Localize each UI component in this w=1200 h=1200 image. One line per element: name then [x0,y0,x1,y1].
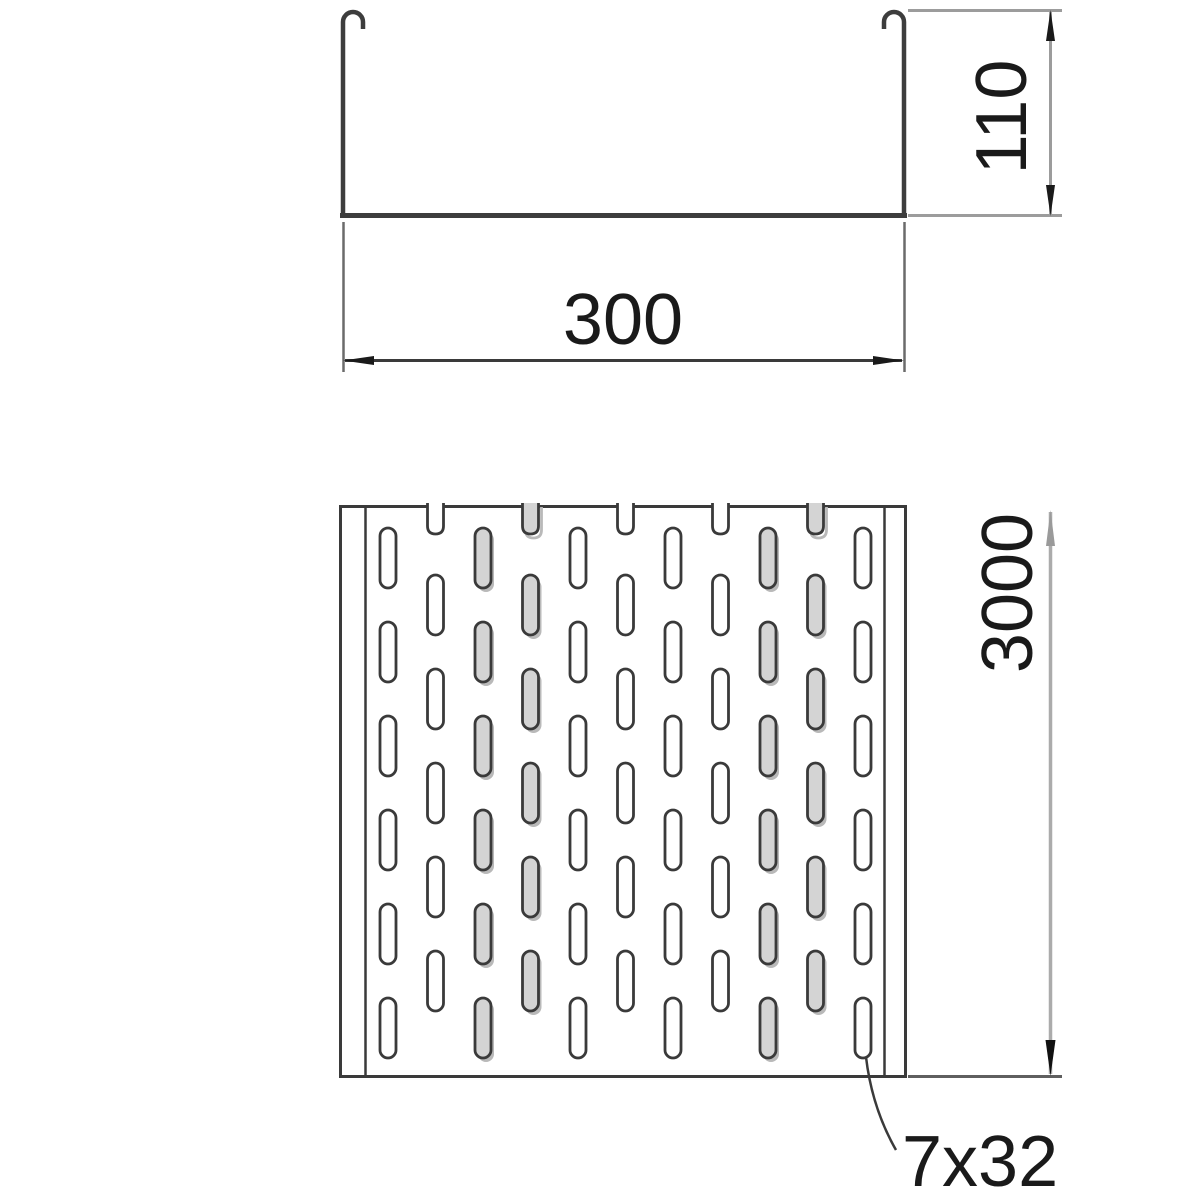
perforation-slot [855,622,871,682]
perforation-slot [808,951,824,1011]
perforation-slot [760,810,776,870]
height-arrow-down-icon [1046,185,1055,216]
perforation-slot [570,528,586,588]
perforation-slot [380,622,396,682]
perforation-slot [523,575,539,635]
perforation-slot [713,951,729,1011]
perforation-slot [713,857,729,917]
perforation-slot [855,998,871,1058]
cross-section-view [340,12,907,218]
perforation-slot [665,528,681,588]
height-arrow-up-icon [1046,10,1055,41]
length-dimension-label: 3000 [968,513,1048,673]
perforation-slot [618,575,634,635]
perforation-slot [760,716,776,776]
perforation-slot [428,857,444,917]
perforation-slot [570,904,586,964]
perforation-slot [475,998,491,1058]
perforation-slot [760,528,776,588]
perforation-slot [475,622,491,682]
width-arrow-left-icon [343,356,374,365]
perforation-slot [570,810,586,870]
perforation-slot [380,998,396,1058]
height-dimension-label: 110 [962,60,1042,175]
length-arrow-down-icon [1046,1040,1056,1076]
perforation-slot [618,951,634,1011]
perforation-slot [665,622,681,682]
perforation-slot [665,716,681,776]
slot-size-callout: 7x32 [866,1057,1058,1200]
slot-notch [808,503,824,534]
perforation-slot [855,528,871,588]
length-dimension: 3000 [908,510,1062,1077]
perforation-slot [475,810,491,870]
width-dimension: 300 [343,222,905,372]
perforation-slot [618,669,634,729]
perforation-slot [475,904,491,964]
perforation-slot [570,998,586,1058]
slot-notch [713,503,729,534]
perforation-slot [808,575,824,635]
perforation-slot [665,998,681,1058]
slot-notch [523,503,539,534]
width-arrow-right-icon [873,356,904,365]
perforation-slot [523,669,539,729]
perforation-slot [665,904,681,964]
perforation-slot [475,716,491,776]
perforation-slot [808,857,824,917]
technical-drawing: 110 300 3000 7x32 [0,0,1200,1200]
perforation-slot [475,528,491,588]
perforation-slot [523,951,539,1011]
perforation-slot [855,716,871,776]
slot-notch [428,503,444,534]
perforation-slot [808,763,824,823]
perforation-slot [570,622,586,682]
slot-notch [618,503,634,534]
perforation-slot [760,904,776,964]
perforation-slot [760,998,776,1058]
right-side-rail-profile [884,12,904,218]
perforation-slot [713,763,729,823]
perforation-slot [618,763,634,823]
perforation-slot [428,669,444,729]
left-side-rail-profile [343,12,363,218]
perforation-slot [523,857,539,917]
plan-view [341,503,906,1077]
perforation-slot [380,904,396,964]
perforation-slot [428,763,444,823]
perforation-slot [713,669,729,729]
perforation-slot [665,810,681,870]
perforation-slot [428,951,444,1011]
slot-size-label: 7x32 [902,1122,1058,1200]
perforation-slot [570,716,586,776]
perforation-slot [855,904,871,964]
height-dimension: 110 [908,10,1062,216]
perforation-slot [808,669,824,729]
perforation-slot [618,857,634,917]
technical-drawing-page: 110 300 3000 7x32 [0,0,1200,1200]
perforation-slot [428,575,444,635]
perforation-slot [855,810,871,870]
perforation-slot [523,763,539,823]
perforation-slot [713,575,729,635]
perforation-slot [380,528,396,588]
perforation-slot [760,622,776,682]
width-dimension-label: 300 [563,280,683,360]
perforation-slot [380,810,396,870]
perforation-slot [380,716,396,776]
